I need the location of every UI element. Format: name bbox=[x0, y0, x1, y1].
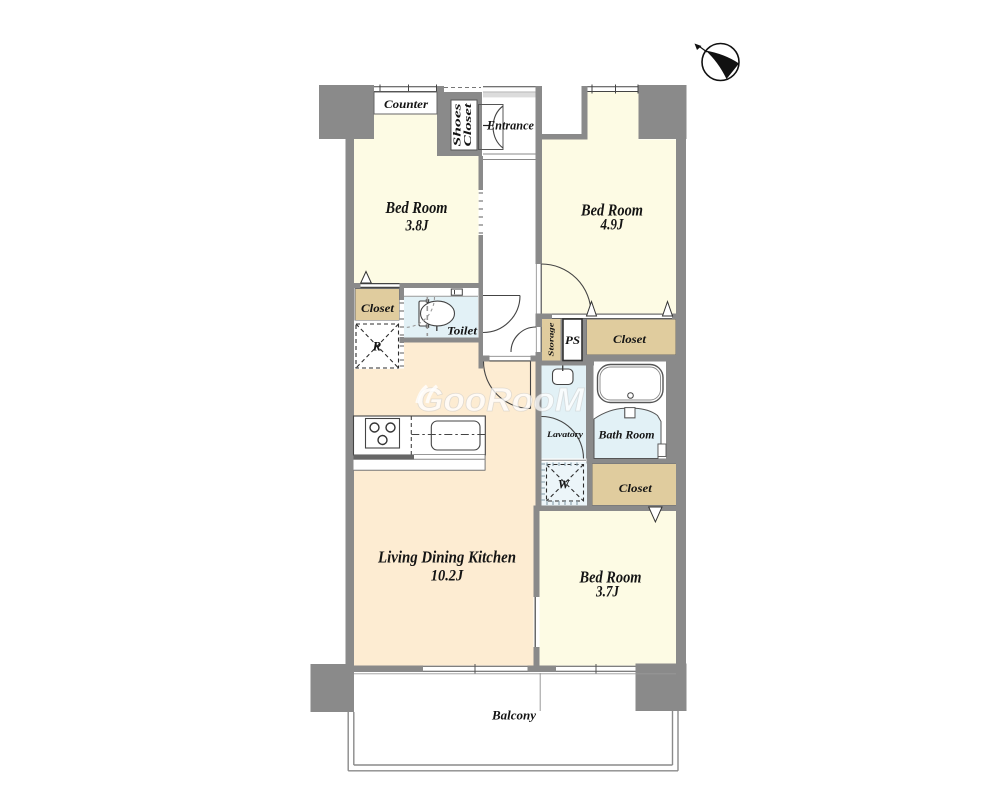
svg-text:Balcony: Balcony bbox=[491, 709, 537, 723]
svg-text:Bath Room: Bath Room bbox=[597, 430, 654, 442]
svg-text:R: R bbox=[372, 339, 382, 354]
svg-text:10.2J: 10.2J bbox=[431, 568, 464, 585]
svg-text:ShoesCloset: ShoesCloset bbox=[453, 101, 475, 146]
svg-text:Bed Room: Bed Room bbox=[385, 198, 448, 217]
svg-text:3.8J: 3.8J bbox=[405, 218, 430, 235]
svg-text:Storage: Storage bbox=[548, 323, 556, 357]
svg-text:3.7J: 3.7J bbox=[595, 584, 620, 601]
svg-text:PS: PS bbox=[565, 333, 580, 347]
svg-text:Closet: Closet bbox=[361, 303, 395, 315]
svg-text:Lavatory: Lavatory bbox=[546, 429, 583, 439]
svg-text:Living Dining Kitchen: Living Dining Kitchen bbox=[377, 548, 516, 567]
svg-text:4.9J: 4.9J bbox=[600, 217, 625, 234]
svg-text:Toilet: Toilet bbox=[447, 326, 478, 338]
svg-text:GooRooM: GooRooM bbox=[416, 381, 586, 418]
svg-text:Closet: Closet bbox=[613, 334, 647, 346]
svg-text:W: W bbox=[558, 477, 571, 492]
svg-text:Counter: Counter bbox=[384, 97, 428, 111]
svg-text:Closet: Closet bbox=[619, 483, 653, 495]
svg-text:Entrance: Entrance bbox=[486, 119, 534, 133]
